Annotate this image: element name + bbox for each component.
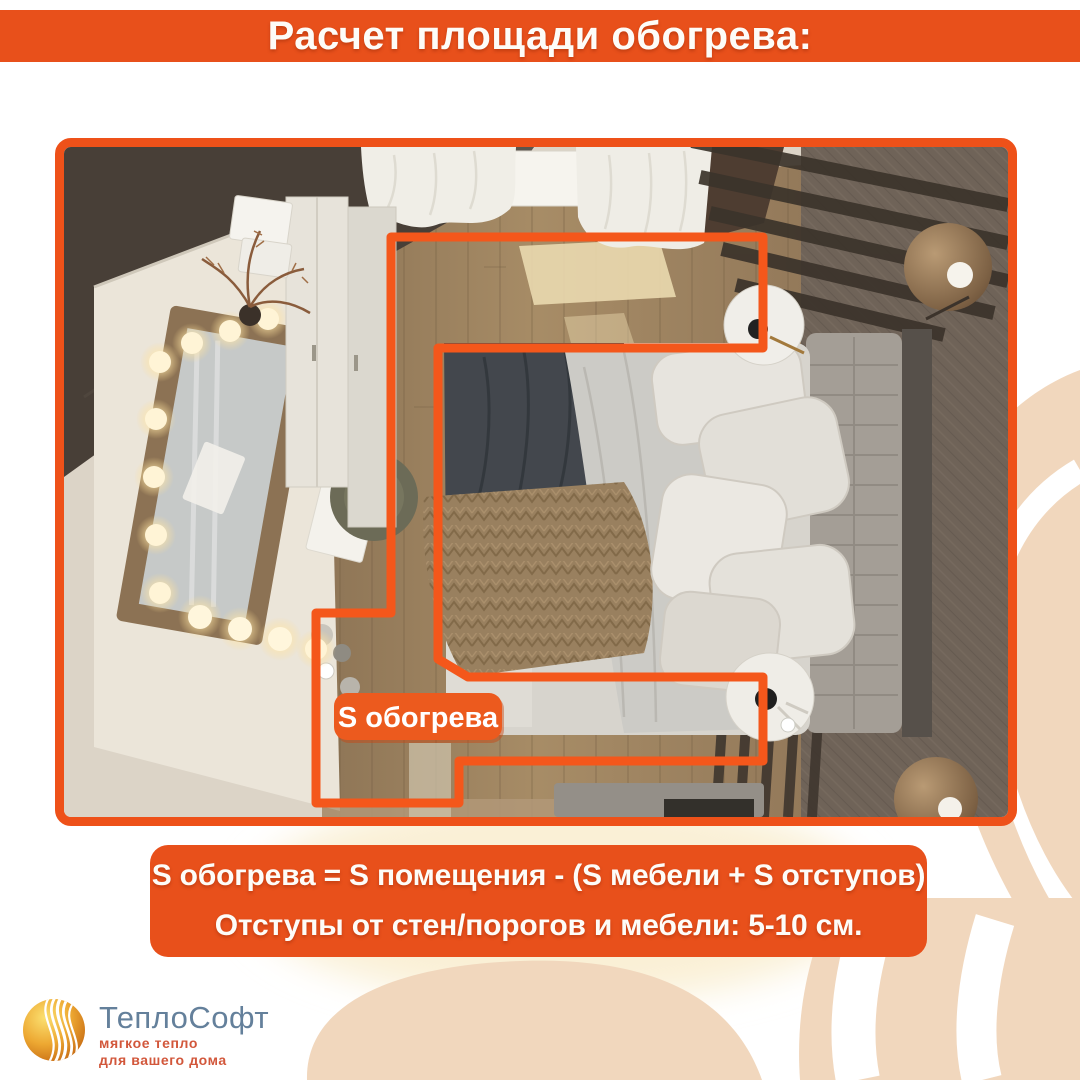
title-banner: Расчет площади обогрева: [0,10,1080,62]
poster-canvas: Расчет площади обогрева: [0,0,1080,1080]
swirl-stripe-bottom-2 [976,920,995,1080]
logo-tagline-line1: мягкое тепло [99,1035,269,1052]
logo-sphere-icon [22,998,86,1062]
room-photo: S обогрева [64,147,1008,817]
formula-line-2: Отступы от стен/порогов и мебели: 5-10 с… [215,901,862,951]
logo-company-name: ТеплоСофт [99,1001,269,1035]
page-title: Расчет площади обогрева: [268,14,813,59]
room-photo-frame: S обогрева [55,138,1017,826]
wardrobe [286,197,396,527]
formula-box: S обогрева = S помещения - (S мебели + S… [150,845,927,957]
heated-area-label: S обогрева [334,693,504,743]
heated-area-label-text: S обогрева [338,702,499,734]
logo-tagline-line2: для вашего дома [99,1052,269,1069]
book-stack [229,195,293,278]
formula-line-1: S обогрева = S помещения - (S мебели + S… [152,851,926,901]
bedside-table-bottom [726,653,814,741]
company-logo: ТеплоСофт мягкое тепло для вашего дома [22,998,269,1069]
bed-frame [902,329,932,737]
